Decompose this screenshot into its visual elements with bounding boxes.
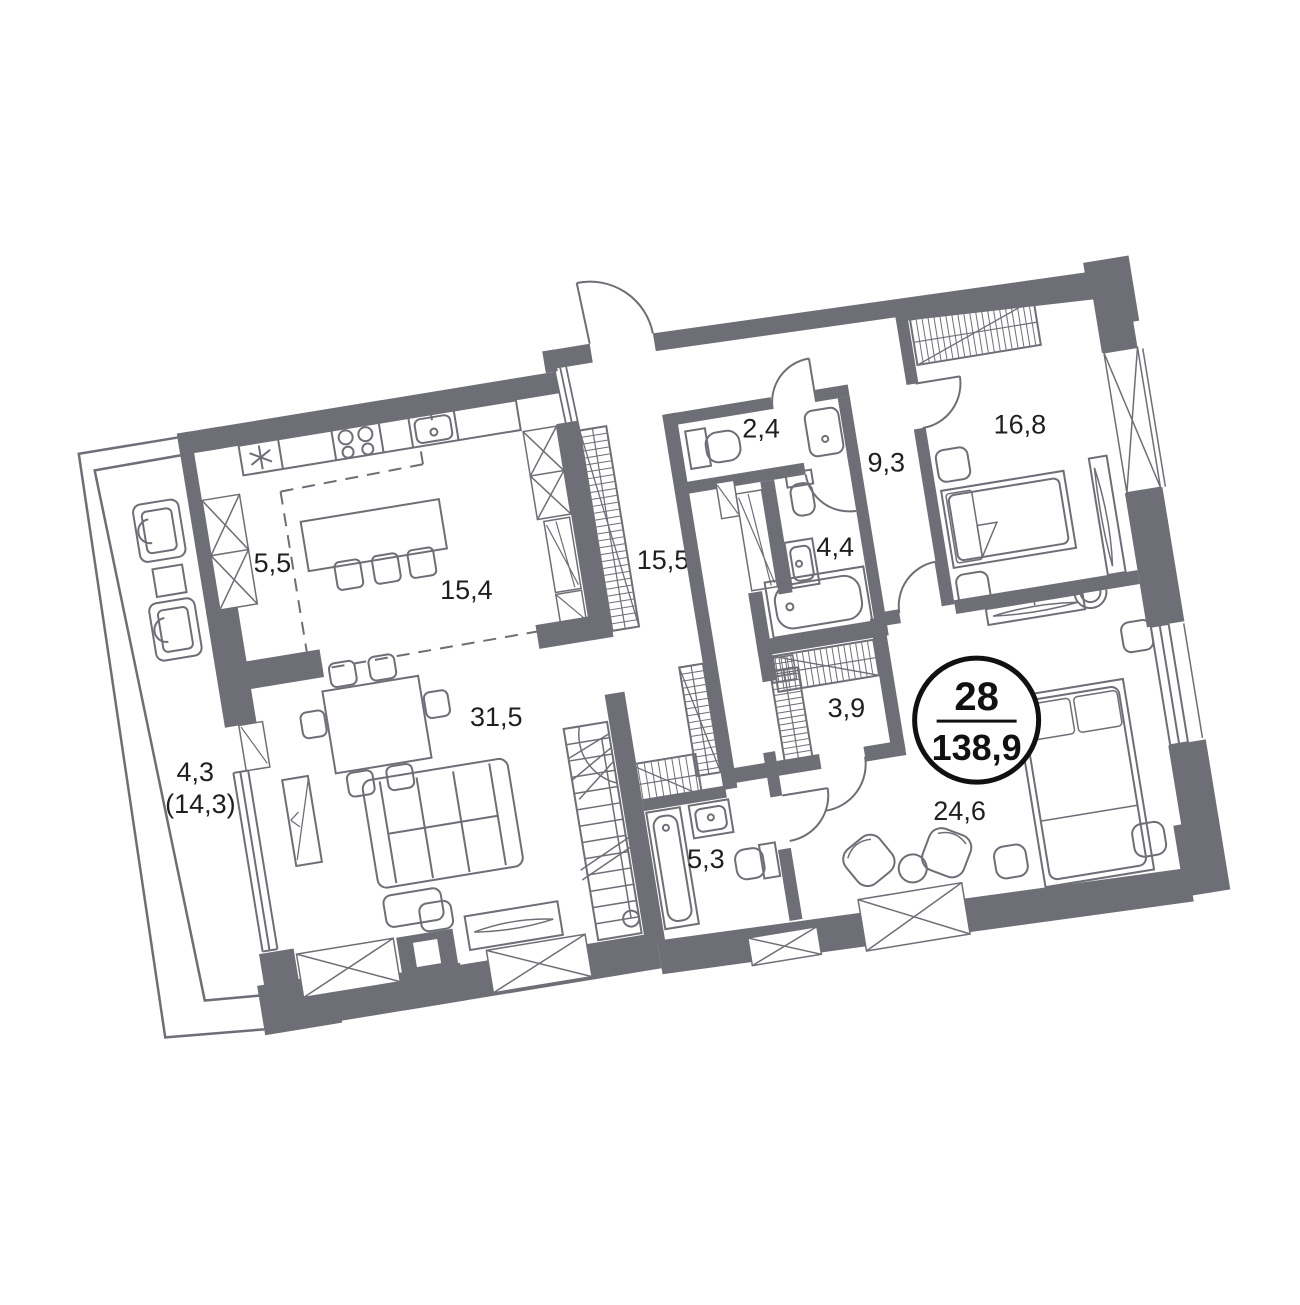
svg-text:2,4: 2,4 (742, 413, 780, 443)
svg-text:15,4: 15,4 (440, 575, 493, 605)
svg-text:5,5: 5,5 (254, 548, 292, 578)
svg-text:16,8: 16,8 (994, 409, 1047, 439)
svg-text:3,9: 3,9 (828, 693, 866, 723)
svg-text:9,3: 9,3 (867, 447, 905, 477)
svg-text:138,9: 138,9 (932, 727, 1022, 768)
svg-text:5,3: 5,3 (687, 844, 725, 874)
svg-text:(14,3): (14,3) (165, 789, 236, 819)
svg-text:28: 28 (954, 675, 999, 719)
svg-text:4,4: 4,4 (816, 532, 854, 562)
svg-text:15,5: 15,5 (637, 545, 690, 575)
svg-text:24,6: 24,6 (933, 796, 986, 826)
svg-text:31,5: 31,5 (470, 702, 523, 732)
svg-text:4,3: 4,3 (176, 757, 214, 787)
